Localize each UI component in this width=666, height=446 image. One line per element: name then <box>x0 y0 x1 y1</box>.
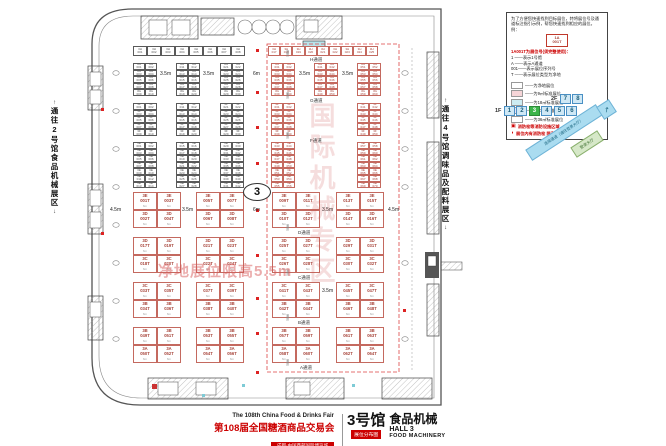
booth-cell: 3H021 <box>317 46 329 56</box>
booth-cell: 3E040 <box>232 175 244 182</box>
booth-cell: 3G002 <box>145 63 157 70</box>
booth-cell: 3F041 <box>357 103 369 110</box>
booth-cell: 3E037 <box>220 168 232 175</box>
booth-cell: 3F036 <box>283 116 295 123</box>
booth-cell: 3F017 <box>176 123 188 130</box>
booth-cell: 3A054T6m <box>196 345 220 363</box>
booth-cell: 3F025 <box>220 116 232 123</box>
aisle-width-label: 3.5m <box>322 288 333 294</box>
booth-cell: 3A062T6m <box>336 345 360 363</box>
hall-title-cn: 3号馆 <box>347 413 385 428</box>
booth-cell: 3E043 <box>271 142 283 149</box>
booth-cell: 3F031 <box>271 103 283 110</box>
booth-cell: 3G047 <box>314 83 326 90</box>
booth-cell: 3F018 <box>188 123 200 130</box>
booth-cell: 3G025 <box>220 76 232 83</box>
booth-cell: 3D008T6m <box>220 210 244 228</box>
booth-cell: 3F038 <box>283 123 295 130</box>
booth-cell: 3G035 <box>271 76 283 83</box>
booth-cell: 3E063 <box>357 162 369 169</box>
booth-cell: 3G023 <box>220 70 232 77</box>
booth-cell: 3B049T6m <box>133 327 157 345</box>
booth-cell: 3E029 <box>220 142 232 149</box>
booth-cell: 3H004 <box>175 46 189 56</box>
booth-cell: 3G008 <box>145 83 157 90</box>
booth-cell: 3C018T6m <box>133 255 157 273</box>
booth-cell: 3H023 <box>341 46 353 56</box>
floor-locator: 2F781F123456 连接通道（通往登录大厅） ↗ 登录大厅 <box>495 94 645 164</box>
aisle-width-label: 3.5m <box>203 71 214 77</box>
booth-cell: 3H005 <box>189 46 203 56</box>
booth-cell: 3E061 <box>357 155 369 162</box>
booth-cell: 3E008 <box>145 162 157 169</box>
legend-rules: 1 ——表示1号馆A ——表示A通道001——表示展位序列号T ——表示展位类型… <box>511 55 603 78</box>
venue-banner: 成都·中国西部国际博览城 <box>271 442 334 446</box>
booth-cell: 3F049 <box>357 129 369 136</box>
booth-cell: 3F011 <box>176 103 188 110</box>
aisle-label: F通道 <box>310 138 322 144</box>
booth-cell: 3G015 <box>176 76 188 83</box>
booth-cell: 3D025T6m <box>272 237 296 255</box>
booth-cell: 3E007T6m <box>220 192 244 210</box>
booth-cell: 3E055 <box>271 182 283 189</box>
booth-cell: 3E001 <box>133 142 145 149</box>
booth-cell: 3A064T6m <box>360 345 384 363</box>
booth-cell: 3E036 <box>232 162 244 169</box>
booth-cell: 3E001T6m <box>133 192 157 210</box>
booth-cell: 3G051 <box>357 63 369 70</box>
booth-cell: 3E030 <box>232 142 244 149</box>
booth-cell: 3F008 <box>145 123 157 130</box>
aisle-width-label: 4.5m <box>388 207 399 213</box>
booth-cell: 3G004 <box>145 70 157 77</box>
booth-cell: 3E003T6m <box>157 192 181 210</box>
booth-cell: 3F015 <box>176 116 188 123</box>
aisle-width-label: 4.5m <box>110 207 121 213</box>
locator-floor-label: 1F <box>495 108 501 114</box>
booth-cell: 3E005T6m <box>196 192 220 210</box>
booth-cell: 3G032 <box>283 63 295 70</box>
aisle-width-label: 6m <box>253 71 260 77</box>
booth-cell: 3C039T6m <box>220 282 244 300</box>
booth-cell: 3F047 <box>357 123 369 130</box>
booth-cell: 3G017 <box>176 83 188 90</box>
booth-cell: 3D019T6m <box>157 237 181 255</box>
booth-cell: 3G046 <box>326 76 338 83</box>
legend-sample-booth: 1A 001T <box>546 34 568 47</box>
booth-cell: 3E057 <box>357 142 369 149</box>
booth-cell: 3E049 <box>271 162 283 169</box>
booth-cell: 3C020T6m <box>157 255 181 273</box>
category-title-cn: 食品机械 <box>389 413 445 426</box>
booth-cell: 3F044 <box>369 110 381 117</box>
arrow-down-icon: ↓ <box>444 225 447 231</box>
booth-cell: 3E025 <box>176 175 188 182</box>
booth-cell: 3B059T6m <box>296 327 320 345</box>
booth-cell: 3E062 <box>369 155 381 162</box>
booth-cell: 3G055 <box>357 76 369 83</box>
booth-cell: 3C024T6m <box>220 255 244 273</box>
booth-cell: 3G013 <box>176 70 188 77</box>
booth-cell: 3E032 <box>232 149 244 156</box>
arrow-down-icon: ↓ <box>53 209 56 215</box>
booth-cell: 3G060 <box>369 89 381 96</box>
booth-cell: 3G039 <box>271 89 283 96</box>
aisle-label: H通道 <box>310 57 322 63</box>
locator-floor-label: 2F <box>551 96 557 102</box>
booth-cell: 3H025 <box>366 46 378 56</box>
booth-cell: 3F001 <box>133 103 145 110</box>
aisle-width-label: 3.5m <box>299 71 310 77</box>
booth-cell: 3F029 <box>220 129 232 136</box>
booth-cell: 3G022 <box>232 63 244 70</box>
booth-cell: 3F050 <box>369 129 381 136</box>
booth-cell: 3E011T6m <box>296 192 320 210</box>
booth-cell: 3B040T6m <box>220 300 244 318</box>
booth-cell: 3G059 <box>357 89 369 96</box>
booth-cell: 3E039 <box>220 175 232 182</box>
aisle-width-label: 3.5m <box>322 207 333 213</box>
booth-cell: 3E011 <box>133 175 145 182</box>
booth-cell: 3F043 <box>357 110 369 117</box>
aisle-label: D通道 <box>298 230 310 236</box>
booth-cell: 3E035 <box>220 162 232 169</box>
booth-cell: 3E007 <box>133 162 145 169</box>
booth-cell: 3G003 <box>133 70 145 77</box>
booth-cell: 3F024 <box>232 110 244 117</box>
booth-cell: 3F027 <box>220 123 232 130</box>
booth-cell: 3E013 <box>133 182 145 189</box>
booth-cell: 3G007 <box>133 83 145 90</box>
booth-cell: 3G041 <box>314 63 326 70</box>
booth-cell: 3C030T6m <box>336 255 360 273</box>
booth-cell: 3H020 <box>305 46 317 56</box>
title-divider <box>342 414 343 446</box>
booth-cell: 3C032T6m <box>360 255 384 273</box>
locator-hall-1: 1 <box>504 106 515 116</box>
booth-cell: 3D017T6m <box>133 237 157 255</box>
booth-cell: 3C043T6m <box>296 282 320 300</box>
locator-hall-7: 7 <box>560 94 571 104</box>
aisle-label: B通道 <box>298 320 310 326</box>
fair-title-cn: 第108届全国糖酒商品交易会 <box>214 420 334 434</box>
booth-cell: 3E017 <box>176 149 188 156</box>
booth-cell: 3E046 <box>283 149 295 156</box>
aisle-label: G通道 <box>310 98 323 104</box>
booth-cell: 3G014 <box>188 70 200 77</box>
booth-cell: 3A060T6m <box>296 345 320 363</box>
booth-cell: 3H001 <box>133 46 147 56</box>
booth-cell: 3E041 <box>220 182 232 189</box>
booth-cell: 3G053 <box>357 70 369 77</box>
booth-cell: 3E006 <box>145 155 157 162</box>
booth-cell: 3E016 <box>188 142 200 149</box>
booth-cell: 3E050 <box>283 162 295 169</box>
booth-cell: 3F039 <box>271 129 283 136</box>
booth-cell: 3E022 <box>188 162 200 169</box>
corridor-left-text: 通往2号馆食品机械展区 <box>49 107 60 208</box>
booth-cell: 3E069 <box>357 182 369 189</box>
aisle-label: 通道 <box>285 224 290 230</box>
booth-cell: 3G033 <box>271 70 283 77</box>
booth-cell: 3E021 <box>176 162 188 169</box>
booth-cell: 3G042 <box>326 63 338 70</box>
booth-cell: 3G037 <box>271 83 283 90</box>
booth-cell: 3H008 <box>231 46 245 56</box>
locator-lobby-tag: 登录大厅 <box>570 130 603 157</box>
booth-cell: 3E053 <box>271 175 283 182</box>
booth-cell: 3F045 <box>357 116 369 123</box>
aisle-label: 通道 <box>285 269 290 275</box>
booth-cell: 3G027 <box>220 83 232 90</box>
booth-cell: 3E054 <box>283 175 295 182</box>
legend-intro: 为了方便您快速找到目标展位，特将展位号及通道标注指引示例，帮您快速找到相应的展位… <box>511 16 603 32</box>
booth-cell: 3D016T6m <box>360 210 384 228</box>
booth-cell: 3E065 <box>357 168 369 175</box>
corridor-right-text: 通往4号馆调味品及配料展区 <box>440 105 451 224</box>
booth-cell: 3E070 <box>369 182 381 189</box>
booth-cell: 3F042 <box>369 103 381 110</box>
locator-hall-8: 8 <box>572 94 583 104</box>
booth-cell: 3F010 <box>145 129 157 136</box>
hall-title-en: HALL 3 <box>389 426 445 434</box>
booth-cell: 3B048T6m <box>360 300 384 318</box>
booth-cell: 3G044 <box>326 70 338 77</box>
booth-cell: 3E026 <box>188 175 200 182</box>
booth-cell: 3E019 <box>176 155 188 162</box>
booth-cell: 3G018 <box>188 83 200 90</box>
booth-cell: 3E067 <box>357 175 369 182</box>
booth-cell: 3B051T6m <box>157 327 181 345</box>
booth-cell: 3F007 <box>133 123 145 130</box>
category-title-en: FOOD MACHINERY <box>389 433 445 439</box>
booth-cell: 3C026T6m <box>272 255 296 273</box>
booth-cell: 3E003 <box>133 149 145 156</box>
booth-cell: 3G021 <box>220 63 232 70</box>
booth-cell: 3H022 <box>329 46 341 56</box>
booth-cell: 3E044 <box>283 142 295 149</box>
booth-cell: 3B034T6m <box>133 300 157 318</box>
booth-cell: 3F048 <box>369 123 381 130</box>
booth-cell: 3G005 <box>133 76 145 83</box>
booth-cell: 3C047T6m <box>360 282 384 300</box>
booth-cell: 3F002 <box>145 103 157 110</box>
hall-map-tag: 展位分布图 <box>351 430 381 439</box>
legend-swatch <box>511 82 523 89</box>
locator-hall-2: 2 <box>516 106 527 116</box>
booth-cell: 3B036T6m <box>157 300 181 318</box>
booth-cell: 3E058 <box>369 142 381 149</box>
booth-cell: 3E048 <box>283 155 295 162</box>
booth-cell: 3G012 <box>188 63 200 70</box>
booth-cell: 3E045 <box>271 149 283 156</box>
booth-cell: 3B046T6m <box>336 300 360 318</box>
locator-hall-5: 5 <box>554 106 565 116</box>
aisle-width-label: 3.5m <box>160 71 171 77</box>
booth-cell: 3G045 <box>314 76 326 83</box>
booth-cell: 3D014T6m <box>336 210 360 228</box>
booth-cell: 3A058T6m <box>272 345 296 363</box>
booth-cell: 3E068 <box>369 175 381 182</box>
booth-cell: 3G010 <box>145 89 157 96</box>
booth-cell: 3H003 <box>161 46 175 56</box>
booth-cell: 3B038T6m <box>196 300 220 318</box>
booth-cell: 3A050T6m <box>133 345 157 363</box>
booth-cell: 3F021 <box>220 103 232 110</box>
booth-cell: 3E023 <box>176 168 188 175</box>
booth-cell: 3E027 <box>176 182 188 189</box>
booth-cell: 3B042T6m <box>272 300 296 318</box>
booth-cell: 3E038 <box>232 168 244 175</box>
booth-cell: 3F046 <box>369 116 381 123</box>
booth-cell: 3E059 <box>357 149 369 156</box>
booth-cell: 3C037T6m <box>196 282 220 300</box>
arrow-up-icon: ↑ <box>444 98 447 104</box>
booth-cell: 3E033 <box>220 155 232 162</box>
booth-cell: 3H007 <box>217 46 231 56</box>
booth-cell: 3H006 <box>203 46 217 56</box>
booth-cell: 3G043 <box>314 70 326 77</box>
booth-cell: 3F037 <box>271 123 283 130</box>
booth-cell: 3D029T6m <box>336 237 360 255</box>
booth-cell: 3C041T6m <box>272 282 296 300</box>
aisle-label: C通道 <box>298 275 310 281</box>
booth-cell: 3E060 <box>369 149 381 156</box>
booth-cell: 3E015T6m <box>360 192 384 210</box>
booth-cell: 3C022T6m <box>196 255 220 273</box>
aisle-width-label: 3.5m <box>182 207 193 213</box>
booth-cell: 3E013T6m <box>336 192 360 210</box>
booth-cell: 3F006 <box>145 116 157 123</box>
fair-title-en: The 108th China Food & Drinks Fair <box>214 413 334 419</box>
booth-cell: 3E024 <box>188 168 200 175</box>
booth-cell: 3E028 <box>188 182 200 189</box>
booth-cell: 3G031 <box>271 63 283 70</box>
booth-cell: 3D021T6m <box>196 237 220 255</box>
booth-cell: 3F020 <box>188 129 200 136</box>
booth-cell: 3B053T6m <box>196 327 220 345</box>
booth-cell: 3G056 <box>369 76 381 83</box>
booth-cell: 3E012 <box>145 175 157 182</box>
booth-cell: 3D031T6m <box>360 237 384 255</box>
booth-cell: 3C028T6m <box>296 255 320 273</box>
booth-cell: 3E009 <box>133 168 145 175</box>
booth-cell: 3F022 <box>232 103 244 110</box>
booth-cell: 3E066 <box>369 168 381 175</box>
booth-cell: 3F032 <box>283 103 295 110</box>
booth-cell: 3G034 <box>283 70 295 77</box>
booth-cell: 3D012T6m <box>296 210 320 228</box>
booth-cell: 3F023 <box>220 110 232 117</box>
booth-cell: 3E052 <box>283 168 295 175</box>
arrow-up-icon: ↑ <box>53 100 56 106</box>
booth-cell: 3G057 <box>357 83 369 90</box>
booth-cell: 3G020 <box>188 89 200 96</box>
booth-cell: 3F013 <box>176 110 188 117</box>
booth-cell: 3H017 <box>268 46 280 56</box>
booth-cell: 3F014 <box>188 110 200 117</box>
aisle-label: 通道 <box>285 359 290 365</box>
booth-cell: 3E005 <box>133 155 145 162</box>
hall-number-badge: 3 <box>243 183 271 201</box>
booth-cell: 3D002T6m <box>133 210 157 228</box>
booth-cell: 3G054 <box>369 70 381 77</box>
booth-cell: 3F004 <box>145 110 157 117</box>
booth-cell: 3F009 <box>133 129 145 136</box>
booth-cell: 3F030 <box>232 129 244 136</box>
booth-cell: 3D027T6m <box>296 237 320 255</box>
booth-cell: 3G019 <box>176 89 188 96</box>
aisle-label: 通道 <box>285 314 290 320</box>
booth-cell: 3D023T6m <box>220 237 244 255</box>
booth-cell: 3E010 <box>145 168 157 175</box>
aisle-label: 通道 <box>285 132 290 138</box>
locator-hall-6: 6 <box>566 106 577 116</box>
booth-cell: 3E014 <box>145 182 157 189</box>
booth-cell: 3D006T6m <box>196 210 220 228</box>
aisle-width-label: 6m <box>253 207 260 213</box>
booth-cell: 3E051 <box>271 168 283 175</box>
booth-cell: 3E034 <box>232 155 244 162</box>
booth-cell: 3E042 <box>232 182 244 189</box>
booth-cell: 3D010T6m <box>272 210 296 228</box>
booth-cell: 3E056 <box>283 182 295 189</box>
booth-cell: 3G030 <box>232 89 244 96</box>
booth-cell: 3F028 <box>232 123 244 130</box>
booth-cell: 3A052T6m <box>157 345 181 363</box>
booth-cell: 3E004 <box>145 149 157 156</box>
booth-cell: 3D004T6m <box>157 210 181 228</box>
booth-cell: 3E020 <box>188 155 200 162</box>
booth-cell: 3G006 <box>145 76 157 83</box>
booth-cell: 3F026 <box>232 116 244 123</box>
aisle-width-label: 3.5m <box>342 71 353 77</box>
booth-cell: 3G024 <box>232 70 244 77</box>
booth-cell: 3G036 <box>283 76 295 83</box>
booth-cell: 3G026 <box>232 76 244 83</box>
aisle-label: A通道 <box>300 365 312 371</box>
booth-cell: 3G052 <box>369 63 381 70</box>
corridor-label-right: ↑ 通往4号馆调味品及配料展区 ↓ <box>440 98 451 231</box>
booth-cell: 3G009 <box>133 89 145 96</box>
booth-cell: 3C033T6m <box>133 282 157 300</box>
booth-cell: 3G049 <box>314 89 326 96</box>
legend-heading: 1A001T为展位号(须完整使用)： <box>511 49 603 54</box>
aisle-label: 通道 <box>285 92 290 98</box>
booth-cell: 3E047 <box>271 155 283 162</box>
booth-cell: 3G038 <box>283 83 295 90</box>
booth-cell: 3C035T6m <box>157 282 181 300</box>
booth-cell: 3F035 <box>271 116 283 123</box>
booth-cell: 3G001 <box>133 63 145 70</box>
booth-cell: 3G028 <box>232 83 244 90</box>
booth-cell: 3B063T6m <box>360 327 384 345</box>
booth-cell: 3H002 <box>147 46 161 56</box>
aisle-label: 通道 <box>285 50 290 56</box>
booth-cell: 3E009T6m <box>272 192 296 210</box>
legend-sample-line2: 001T <box>547 40 567 44</box>
booth-cell: 3G058 <box>369 83 381 90</box>
title-block: The 108th China Food & Drinks Fair 第108届… <box>214 413 445 446</box>
booth-cell: 3H019 <box>292 46 304 56</box>
booth-cell: 3G029 <box>220 89 232 96</box>
booth-cell: 3G016 <box>188 76 200 83</box>
booth-cell: 3F034 <box>283 110 295 117</box>
booth-cell: 3F019 <box>176 129 188 136</box>
booth-cell: 3G011 <box>176 63 188 70</box>
booth-cell: 3B061T6m <box>336 327 360 345</box>
booth-cell: 3H024 <box>353 46 365 56</box>
